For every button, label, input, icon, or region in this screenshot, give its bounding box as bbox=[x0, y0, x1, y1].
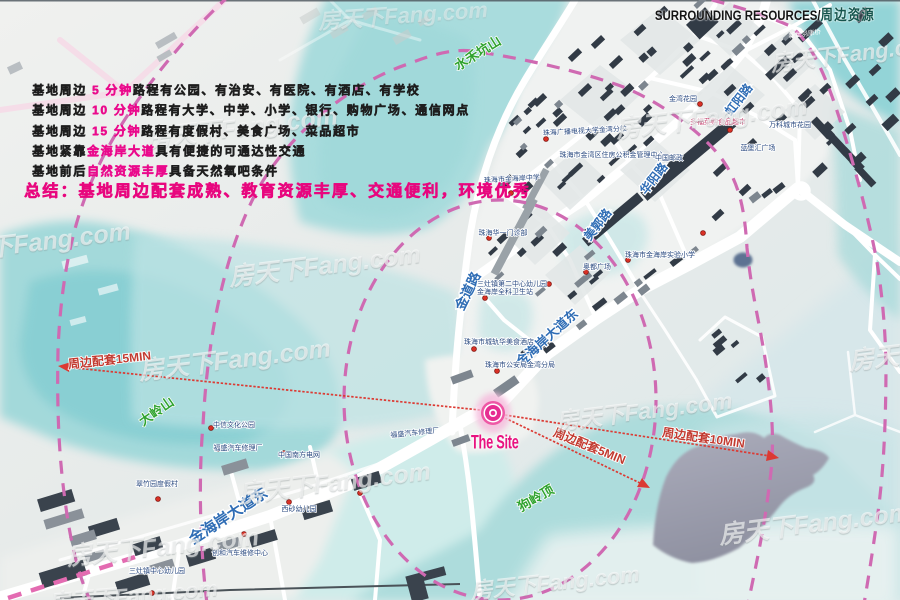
svg-text:福盛汽车修理厂: 福盛汽车修理厂 bbox=[214, 443, 263, 452]
svg-text:蓝堡汇广场: 蓝堡汇广场 bbox=[741, 143, 776, 152]
svg-text:珠海市公安局金湾分局: 珠海市公安局金湾分局 bbox=[485, 360, 555, 369]
svg-text:珠海市金湾区住房公积金管理中心: 珠海市金湾区住房公积金管理中心 bbox=[560, 150, 665, 159]
svg-text:珠海市金海岸实验小学: 珠海市金海岸实验小学 bbox=[625, 250, 695, 259]
svg-text:金海岸全科卫生站: 金海岸全科卫生站 bbox=[477, 287, 533, 296]
svg-text:中国邮政: 中国邮政 bbox=[655, 153, 683, 162]
svg-text:珠海华一门诊部: 珠海华一门诊部 bbox=[479, 228, 528, 237]
svg-text:中国南方电网: 中国南方电网 bbox=[278, 450, 320, 459]
svg-text:珠海市城轨华美食酒店: 珠海市城轨华美食酒店 bbox=[464, 337, 534, 346]
svg-text:翠竹园度假村: 翠竹园度假村 bbox=[136, 479, 178, 488]
svg-text:三灶镇第二中心幼儿园: 三灶镇第二中心幼儿园 bbox=[477, 279, 547, 288]
svg-text:奥都广场: 奥都广场 bbox=[583, 262, 611, 271]
svg-text:中信文化公园: 中信文化公园 bbox=[213, 420, 255, 429]
svg-text:西砂幼儿园: 西砂幼儿园 bbox=[282, 504, 317, 513]
